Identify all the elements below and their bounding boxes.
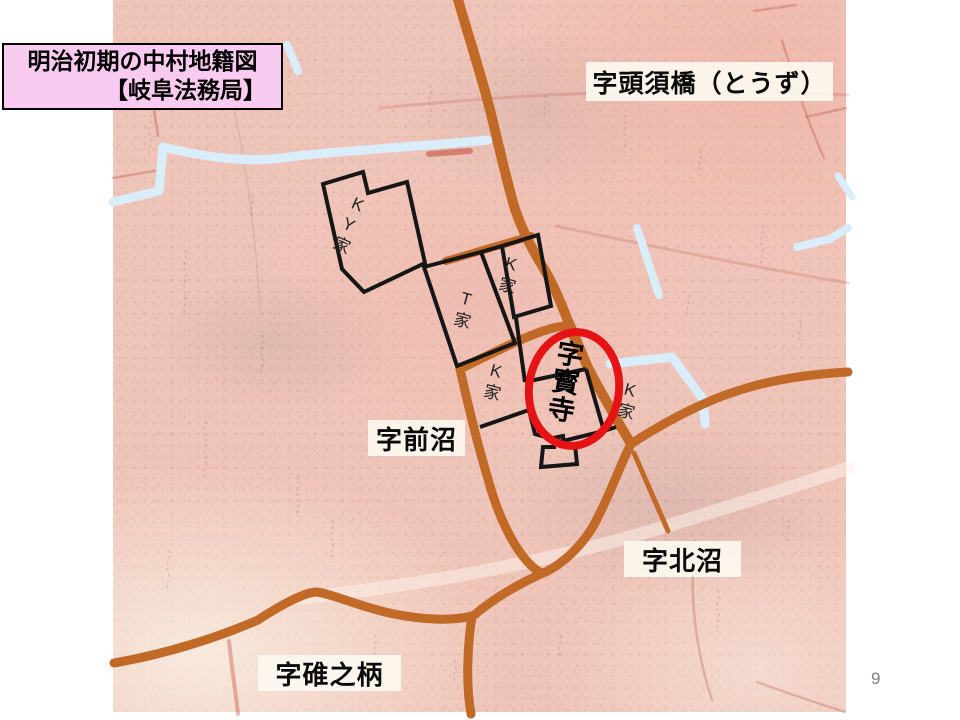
page-number: 9 xyxy=(871,669,880,689)
title-box: 明治初期の中村地籍図 【岐阜法務局】 xyxy=(2,43,283,110)
title-line1: 明治初期の中村地籍図 xyxy=(4,47,281,76)
slide: 明治初期の中村地籍図 【岐阜法務局】 字頭須橋（とうず） 字前沼 字北沼 字碓之… xyxy=(0,0,960,720)
area-label-usunoe: 字碓之柄 xyxy=(258,655,401,691)
area-label-kitanuma: 字北沼 xyxy=(624,541,741,577)
area-label-maenuma: 字前沼 xyxy=(368,420,465,456)
title-line2: 【岐阜法務局】 xyxy=(4,76,281,105)
area-label-tozu: 字頭須橋（とうず） xyxy=(586,62,833,101)
